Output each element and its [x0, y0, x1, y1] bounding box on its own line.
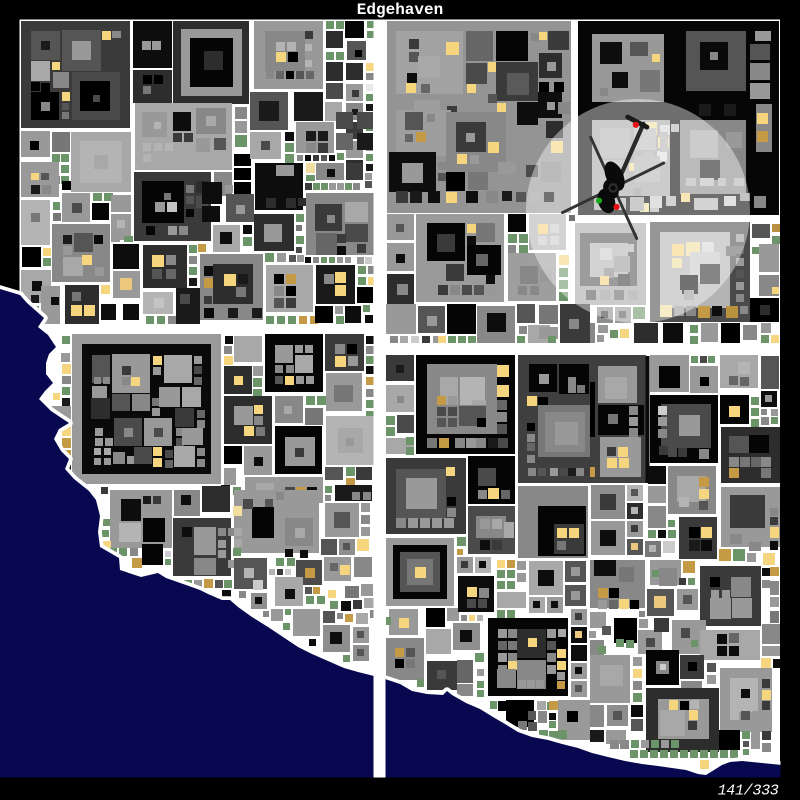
- svg-text:Edgehaven: Edgehaven: [357, 1, 443, 19]
- svg-text:141/333: 141/333: [718, 783, 779, 800]
